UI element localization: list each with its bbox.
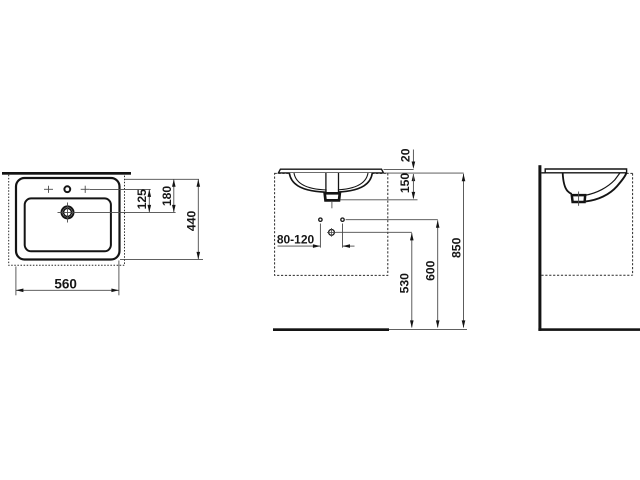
svg-text:150: 150 bbox=[398, 173, 412, 194]
svg-text:560: 560 bbox=[54, 276, 77, 291]
svg-text:850: 850 bbox=[449, 237, 463, 258]
svg-text:80-120: 80-120 bbox=[277, 233, 315, 247]
svg-text:530: 530 bbox=[397, 273, 411, 294]
svg-text:180: 180 bbox=[160, 186, 174, 207]
svg-text:600: 600 bbox=[423, 260, 437, 281]
svg-text:125: 125 bbox=[135, 189, 149, 210]
svg-text:20: 20 bbox=[398, 148, 412, 162]
svg-text:440: 440 bbox=[184, 211, 198, 232]
